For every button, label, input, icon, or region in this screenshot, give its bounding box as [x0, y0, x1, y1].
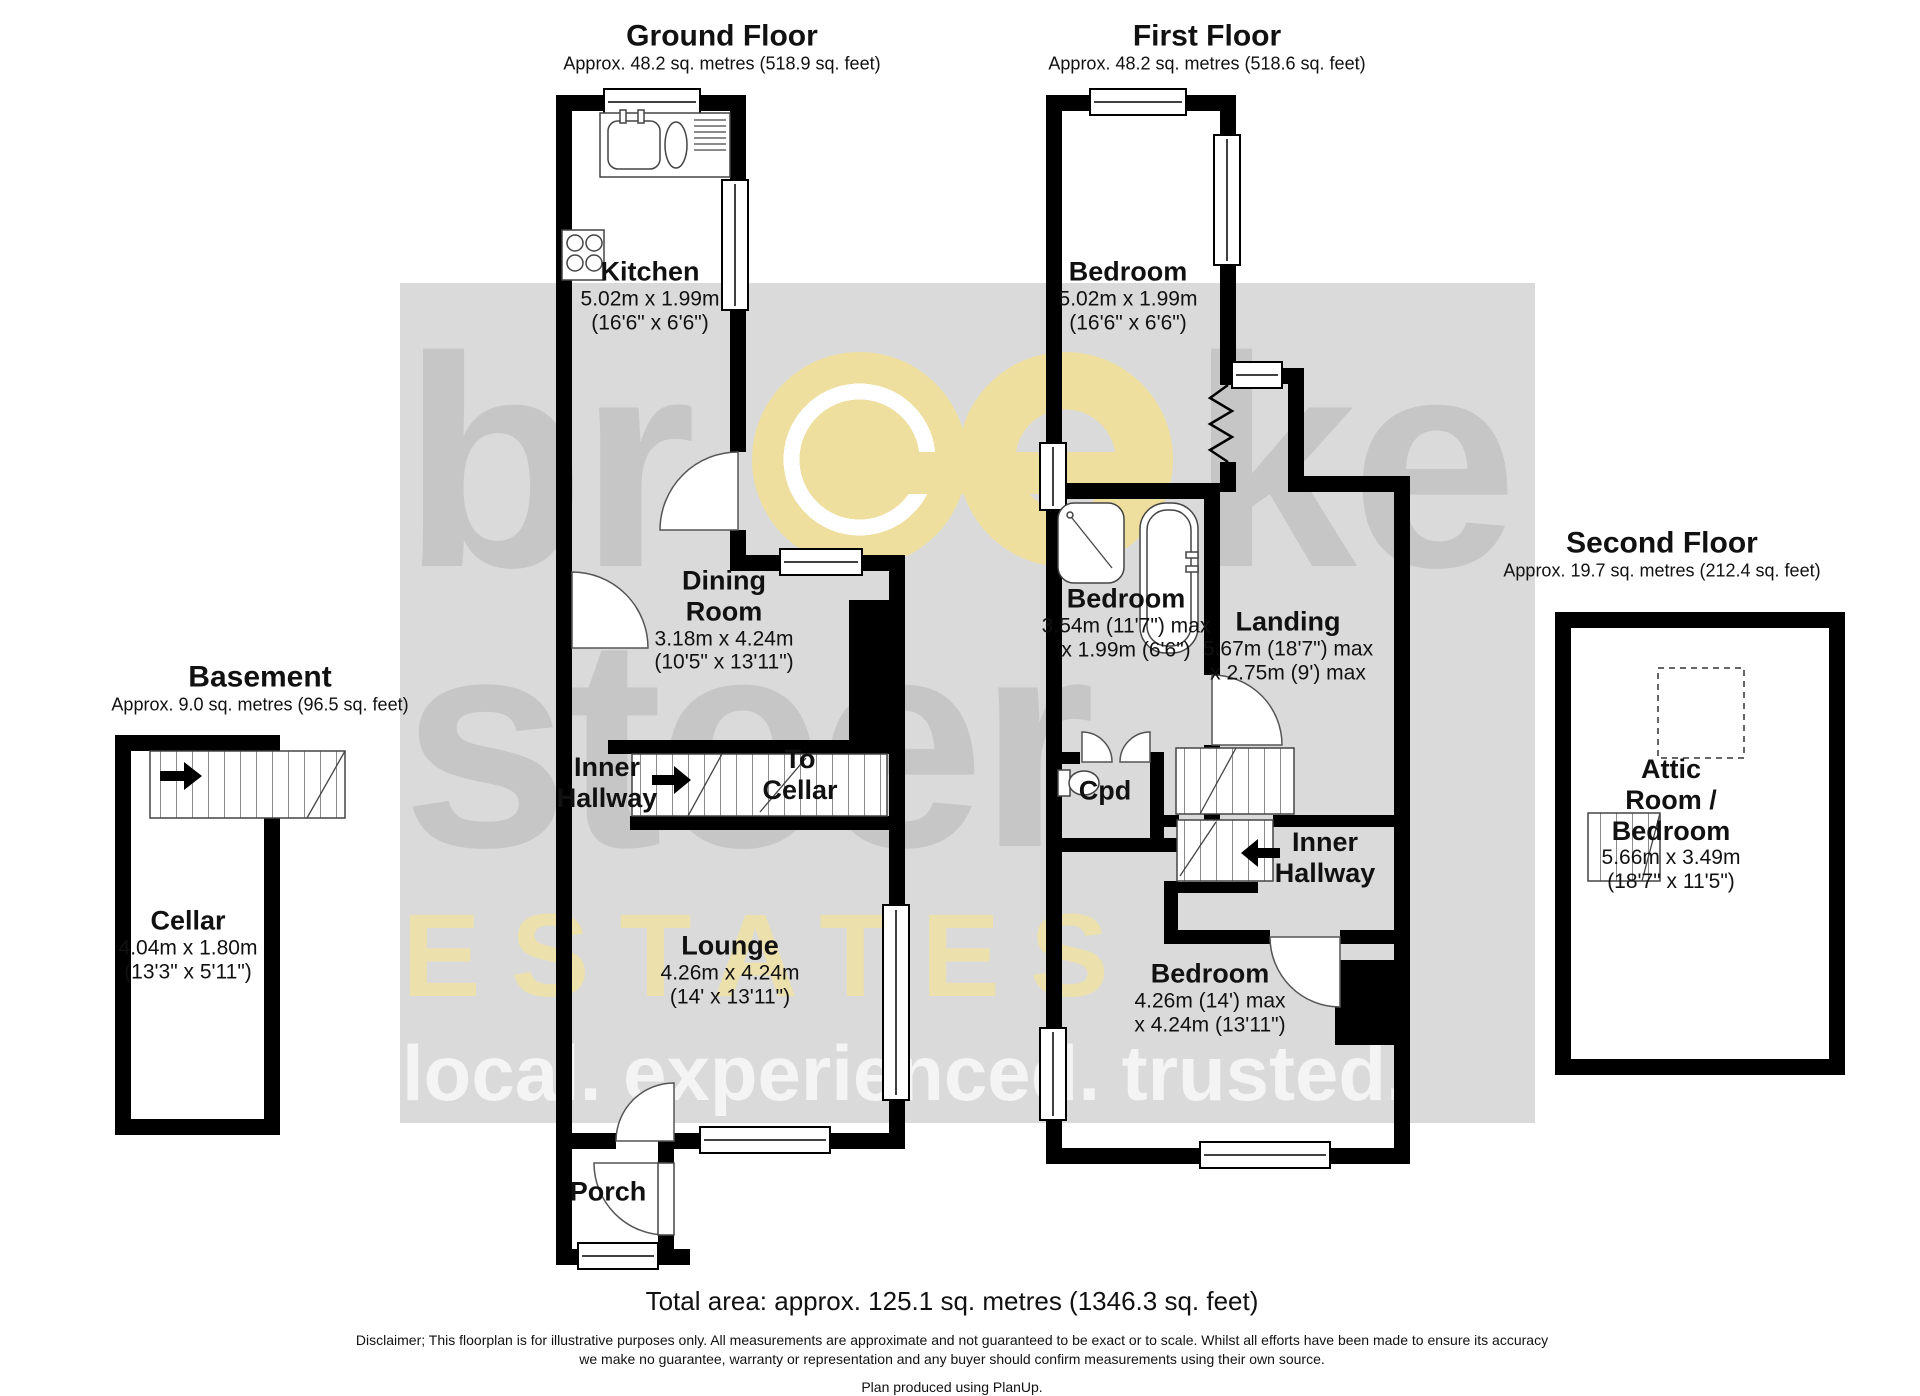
room-label-attic: Attic Room / Bedroom 5.66m x 3.49m (18'7…: [1602, 754, 1741, 894]
room-label-cupboard: Cpd: [1079, 776, 1131, 807]
room-name: Landing: [1203, 607, 1373, 638]
total-area-text: Total area: approx. 125.1 sq. metres (13…: [646, 1287, 1259, 1317]
room-dims: 5.67m (18'7") max: [1203, 637, 1373, 661]
tap-icon: [638, 110, 644, 123]
floorplan-page: br ke steer ESTATES local. experienced. …: [0, 0, 1920, 1396]
room-label-inner-hallway: Inner Hallway: [551, 752, 663, 814]
room-name: To Cellar: [759, 744, 841, 806]
first-floor-title-block: First Floor Approx. 48.2 sq. metres (518…: [1048, 20, 1365, 75]
room-name: Lounge: [661, 931, 800, 962]
tap-icon: [620, 110, 626, 123]
room-dims: 5.02m x 1.99m: [1059, 287, 1198, 311]
room-label-lounge: Lounge 4.26m x 4.24m (14' x 13'11"): [661, 931, 800, 1010]
window-icon: [1090, 89, 1186, 115]
ground-floor-title-block: Ground Floor Approx. 48.2 sq. metres (51…: [563, 20, 880, 75]
room-dims: (16'6" x 6'6"): [1059, 311, 1198, 335]
room-dims: (13'3" x 5'11"): [119, 960, 258, 984]
window-icon: [578, 1243, 658, 1269]
obscure-window-zigzag-icon: [1210, 385, 1232, 462]
chimney-breast: [849, 600, 889, 740]
drainer-icon: [665, 122, 687, 168]
room-name: Bedroom: [1134, 959, 1285, 990]
room-label-kitchen: Kitchen 5.02m x 1.99m (16'6" x 6'6"): [581, 257, 720, 336]
window-icon: [604, 89, 700, 115]
room-name: Bedroom: [1059, 257, 1198, 288]
room-dims: 3.18m x 4.24m: [654, 627, 793, 651]
toilet-cistern: [1058, 770, 1070, 796]
window-icon: [1200, 1142, 1330, 1168]
disclaimer-line-1: Disclaimer; This floorplan is for illust…: [356, 1333, 1548, 1349]
room-dims: 3.54m (11'7") max: [1042, 614, 1211, 638]
room-name: Attic Room / Bedroom: [1609, 754, 1734, 846]
tap-icon: [1186, 566, 1198, 572]
door-arc-icon: [572, 572, 648, 648]
floor-subtitle: Approx. 48.2 sq. metres (518.9 sq. feet): [563, 54, 880, 75]
front-door-leaf: [658, 1163, 674, 1235]
room-name: Dining Room: [672, 565, 777, 627]
room-dims: x 2.75m (9') max: [1203, 661, 1373, 685]
door-arc-icon: [1212, 675, 1282, 745]
room-name: Kitchen: [581, 257, 720, 288]
room-dims: x 1.99m (6'6"): [1042, 638, 1211, 662]
cupboard-door-arc-icon: [1082, 732, 1112, 762]
room-dims: 4.26m x 4.24m: [661, 961, 800, 985]
room-dims: (10'5" x 13'11"): [654, 651, 793, 675]
floor-subtitle: Approx. 48.2 sq. metres (518.6 sq. feet): [1048, 54, 1365, 75]
produced-by-text: Plan produced using PlanUp.: [861, 1380, 1042, 1396]
window-icon: [883, 905, 909, 1100]
room-dims: (16'6" x 6'6"): [581, 311, 720, 335]
door-arc-icon: [616, 1083, 674, 1141]
stairs: [150, 751, 345, 818]
basement-title-block: Basement Approx. 9.0 sq. metres (96.5 sq…: [111, 661, 408, 716]
room-name: Porch: [570, 1177, 647, 1208]
room-dims: (18'7" x 11'5"): [1602, 870, 1741, 894]
room-dims: 5.02m x 1.99m: [581, 287, 720, 311]
room-dims: 5.66m x 3.49m: [1602, 846, 1741, 870]
floor-subtitle: Approx. 19.7 sq. metres (212.4 sq. feet): [1503, 561, 1820, 582]
room-label-dining-room: Dining Room 3.18m x 4.24m (10'5" x 13'11…: [654, 565, 793, 674]
sink-icon: [608, 121, 660, 169]
room-dims: 4.04m x 1.80m: [119, 936, 258, 960]
window-icon: [1232, 362, 1282, 388]
floor-subtitle: Approx. 9.0 sq. metres (96.5 sq. feet): [111, 695, 408, 716]
tap-icon: [1186, 552, 1198, 558]
kitchen-fixtures: [562, 110, 730, 280]
hob-ring-icon: [567, 235, 583, 251]
room-name: Inner Hallway: [551, 752, 663, 814]
door-arc-icon: [660, 452, 738, 530]
floor-title: First Floor: [1048, 20, 1365, 54]
window-icon: [700, 1127, 830, 1153]
second-floor-title-block: Second Floor Approx. 19.7 sq. metres (21…: [1503, 527, 1820, 582]
hob-ring-icon: [586, 235, 602, 251]
window-icon: [1040, 443, 1066, 510]
reduced-headroom-dashed-area: [1658, 668, 1744, 758]
cupboard-door-arc-icon: [1120, 732, 1150, 762]
room-label-porch: Porch: [570, 1177, 647, 1208]
chimney-breast: [1335, 960, 1394, 1045]
room-name: Cellar: [119, 906, 258, 937]
room-label-landing: Landing 5.67m (18'7") max x 2.75m (9') m…: [1203, 607, 1373, 686]
room-dims: 4.26m (14') max: [1134, 989, 1285, 1013]
disclaimer-line-2: we make no guarantee, warranty or repres…: [579, 1352, 1325, 1368]
room-label-bedroom-front: Bedroom 5.02m x 1.99m (16'6" x 6'6"): [1059, 257, 1198, 336]
room-name: Bedroom: [1042, 584, 1211, 615]
room-dims: x 4.24m (13'11"): [1134, 1013, 1285, 1037]
floor-title: Basement: [111, 661, 408, 695]
floor-title: Ground Floor: [563, 20, 880, 54]
room-label-bedroom-rear: Bedroom 4.26m (14') max x 4.24m (13'11"): [1134, 959, 1285, 1038]
room-label-to-cellar: To Cellar: [759, 744, 841, 806]
room-label-inner-hallway-first: Inner Hallway: [1268, 827, 1383, 889]
window-icon: [722, 180, 748, 310]
window-icon: [1040, 1028, 1066, 1120]
room-name: Cpd: [1079, 776, 1131, 807]
floor-title: Second Floor: [1503, 527, 1820, 561]
room-dims: (14' x 13'11"): [661, 985, 800, 1009]
window-icon: [1214, 135, 1240, 265]
room-name: Inner Hallway: [1268, 827, 1383, 889]
room-label-bedroom-middle: Bedroom 3.54m (11'7") max x 1.99m (6'6"): [1042, 584, 1211, 663]
room-label-cellar: Cellar 4.04m x 1.80m (13'3" x 5'11"): [119, 906, 258, 985]
